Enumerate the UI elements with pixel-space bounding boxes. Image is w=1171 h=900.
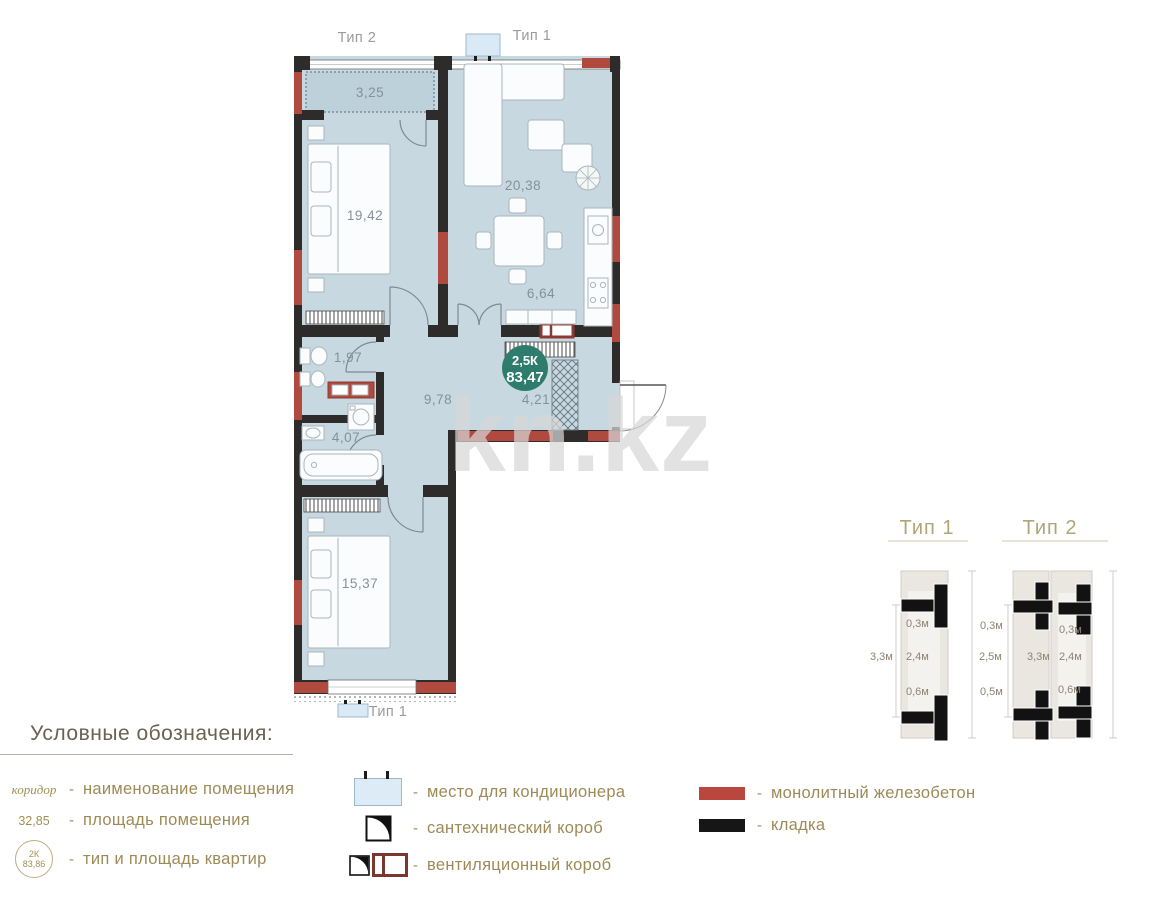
legend-label-ac: место для кондиционера bbox=[427, 783, 625, 802]
badge-type: 2,5К bbox=[512, 353, 538, 368]
top-window-band bbox=[296, 60, 620, 69]
legend-row-masonry: - кладка bbox=[696, 816, 825, 835]
t1-dim-middle: 2,4м bbox=[906, 651, 929, 663]
legend-dash: - bbox=[413, 820, 418, 837]
legend-dash: - bbox=[69, 812, 74, 829]
t2-dim-right-top: 0,3м bbox=[1059, 624, 1082, 636]
diagram-type1-title: Тип 1 bbox=[899, 517, 954, 539]
room-label-wc: 1,97 bbox=[334, 350, 362, 365]
legend-dash: - bbox=[757, 817, 762, 834]
t1-dim-top: 0,3м bbox=[906, 618, 929, 630]
t2-dim-middle: 3,3м bbox=[1027, 651, 1050, 663]
plan-type-label-bottom: Тип 1 bbox=[369, 704, 408, 720]
room-label-hallway: 9,78 bbox=[424, 392, 452, 407]
entrance-door bbox=[620, 381, 666, 431]
legend-label-vent-shaft: вентиляционный короб bbox=[427, 856, 611, 875]
room-label-kitchen: 6,64 bbox=[527, 286, 555, 301]
room-label-bedroom-1: 19,42 bbox=[347, 208, 383, 223]
floor-plan: 3,25 19,42 20,38 6,64 1,97 9,78 4,21 4,0… bbox=[288, 20, 688, 720]
legend-row-apartment-type: 2К 83,86 - тип и площадь квартир bbox=[8, 840, 267, 878]
room-label-bedroom-2: 15,37 bbox=[342, 576, 378, 591]
room-label-balcony: 3,25 bbox=[356, 85, 384, 100]
vent-shaft-icon bbox=[349, 853, 408, 877]
vent-box bbox=[541, 324, 573, 337]
legend-symbol-apartment-type: 2К bbox=[29, 849, 39, 859]
ac-place-bottom bbox=[338, 700, 368, 717]
room-label-bathroom: 4,07 bbox=[332, 430, 360, 445]
legend-symbol-room-area: 32,85 bbox=[18, 814, 49, 828]
plan-type-label-top-right: Тип 1 bbox=[513, 28, 552, 44]
apartment-badge: 2,5К 83,47 bbox=[502, 345, 548, 391]
t1-dim-overall: 3,3м bbox=[870, 651, 893, 663]
concrete-bar-icon bbox=[699, 787, 745, 800]
page: 3,25 19,42 20,38 6,64 1,97 9,78 4,21 4,0… bbox=[0, 0, 1171, 900]
legend-dash: - bbox=[413, 784, 418, 801]
legend-symbol-room-name: коридор bbox=[12, 782, 57, 798]
legend-dash: - bbox=[413, 857, 418, 874]
plumbing-shaft-icon bbox=[365, 815, 392, 842]
legend-title-underline bbox=[0, 754, 293, 755]
legend-row-concrete: - монолитный железобетон bbox=[696, 784, 975, 803]
apartment-type-badge-icon: 2К 83,86 bbox=[15, 840, 53, 878]
badge-area: 83,47 bbox=[506, 369, 544, 386]
room-label-wardrobe: 4,21 bbox=[522, 392, 550, 407]
wardrobe-hatch bbox=[552, 360, 578, 430]
t2-dim-left-middle: 2,5м bbox=[979, 651, 1002, 663]
t2-dim-right-middle: 2,4м bbox=[1059, 651, 1082, 663]
legend-symbol-apartment-area: 83,86 bbox=[23, 859, 46, 869]
legend-dash: - bbox=[69, 781, 74, 798]
plan-type-label-top-left: Тип 2 bbox=[338, 30, 377, 46]
legend-row-plumbing-shaft: - сантехнический короб bbox=[352, 815, 603, 842]
t2-dim-left-top: 0,3м bbox=[980, 620, 1003, 632]
room-label-living-room: 20,38 bbox=[505, 178, 541, 193]
legend-row-ac: - место для кондиционера bbox=[352, 778, 625, 806]
legend-label-room-area: площадь помещения bbox=[83, 811, 250, 830]
t1-dim-bottom: 0,6м bbox=[906, 686, 929, 698]
legend-row-vent-shaft: - вентиляционный короб bbox=[352, 853, 611, 877]
legend-label-masonry: кладка bbox=[771, 816, 825, 835]
diagram-type2-title: Тип 2 bbox=[1022, 517, 1077, 539]
legend-title: Условные обозначения: bbox=[30, 722, 273, 746]
legend-label-apartment-type: тип и площадь квартир bbox=[83, 850, 267, 869]
legend-label-plumbing-shaft: сантехнический короб bbox=[427, 819, 603, 838]
t2-dim-right-bottom: 0,6м bbox=[1058, 684, 1081, 696]
legend-label-room-name: наименование помещения bbox=[83, 780, 294, 799]
legend-dash: - bbox=[69, 851, 74, 868]
masonry-bar-icon bbox=[699, 819, 745, 832]
legend-label-concrete: монолитный железобетон bbox=[771, 784, 975, 803]
type-diagrams: Тип 1 Тип 2 0,3м 2,4м 0,6м 3,3м bbox=[862, 505, 1162, 775]
legend-dash: - bbox=[757, 785, 762, 802]
legend-row-room-name: коридор - наименование помещения bbox=[8, 780, 294, 799]
legend-row-room-area: 32,85 - площадь помещения bbox=[8, 811, 250, 830]
diagram-type1: 0,3м 2,4м 0,6м 3,3м bbox=[870, 571, 976, 741]
t2-dim-left-bottom: 0,5м bbox=[980, 686, 1003, 698]
diagram-type2: 0,3м 0,3м 2,5м 3,3м 2,4м 0,5м 0,6м bbox=[979, 571, 1117, 740]
ac-place-icon bbox=[354, 778, 402, 806]
